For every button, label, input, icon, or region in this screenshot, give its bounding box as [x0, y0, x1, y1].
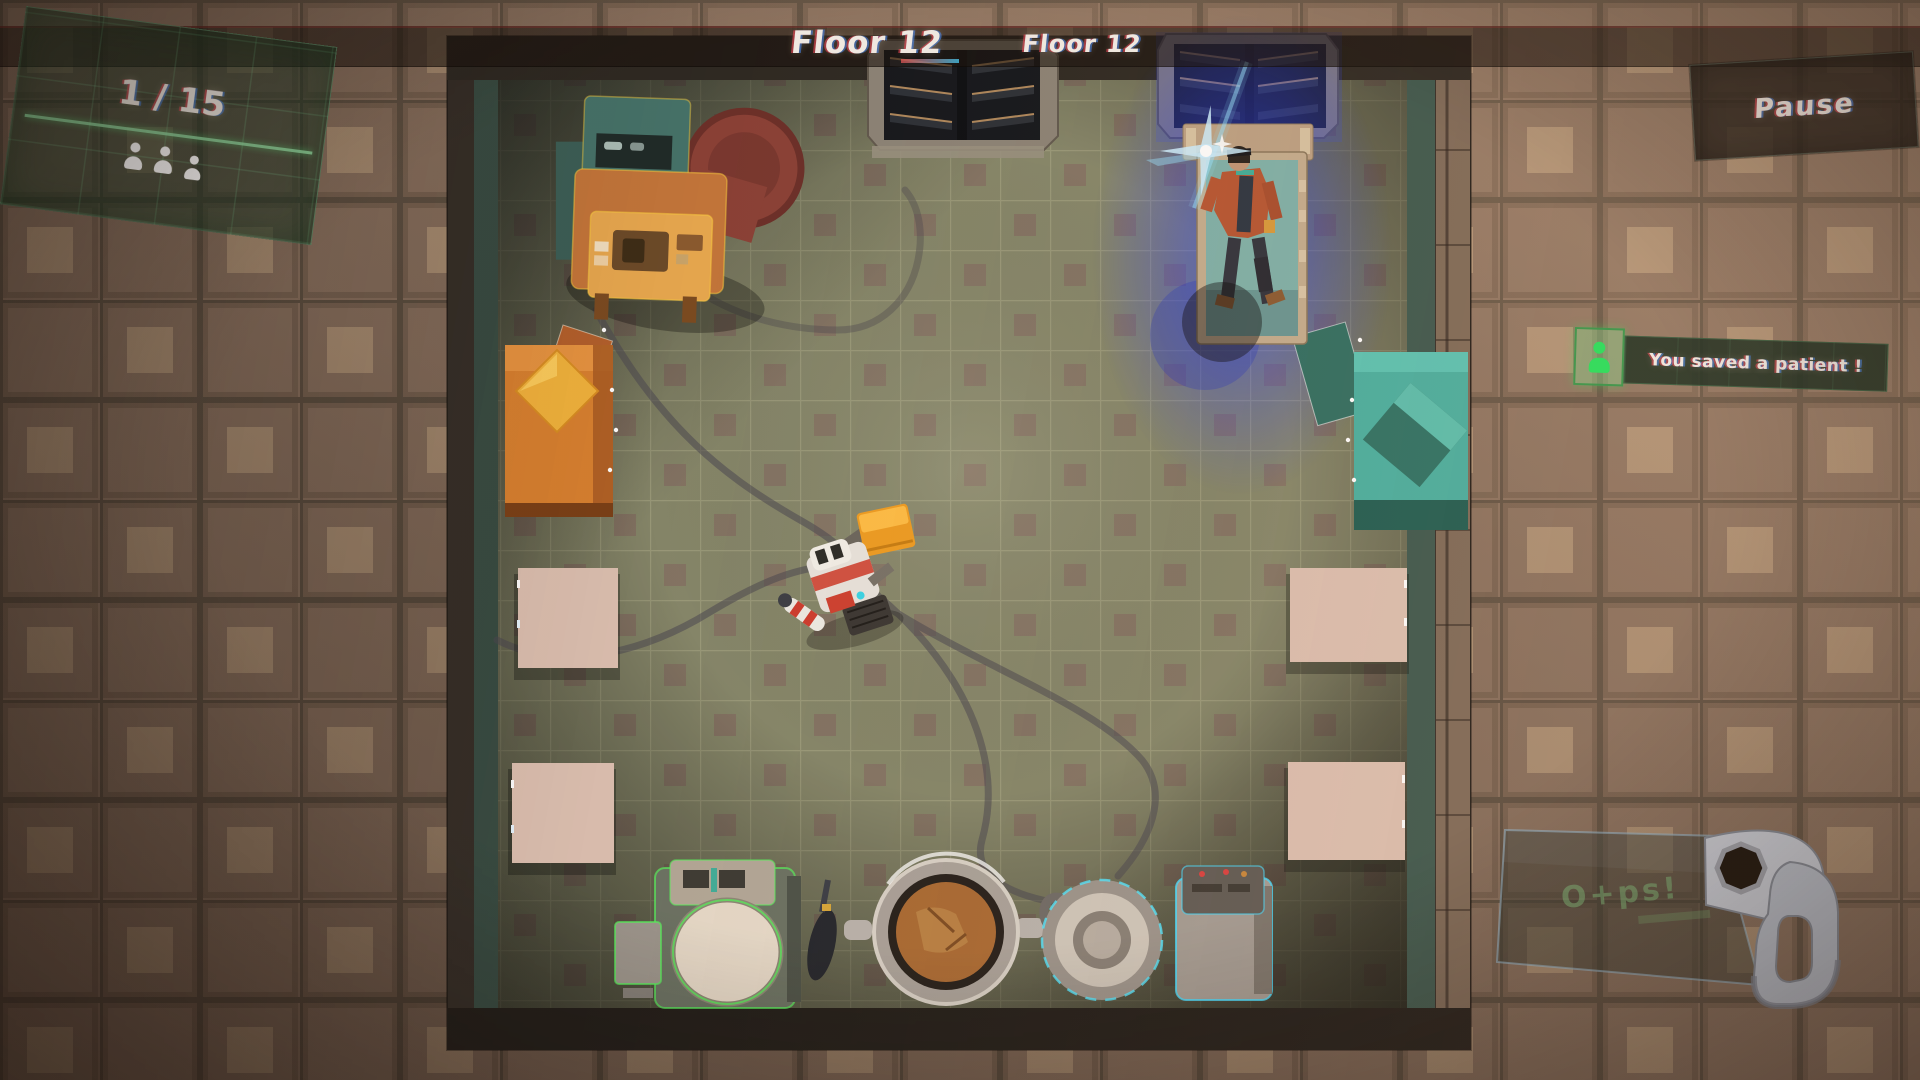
sterilizer-round-device[interactable] [1042, 880, 1162, 1000]
floor-label-underline [901, 59, 959, 63]
pause-button[interactable]: Pause [1689, 51, 1918, 160]
operating-table-right-2[interactable] [1284, 762, 1405, 872]
person-icon [152, 145, 175, 174]
room-wall-left [474, 62, 498, 1008]
floor-label-secondary: Floor 12 [1001, 30, 1164, 58]
notification-text: You saved a patient ! [1649, 350, 1863, 377]
person-icon [123, 141, 146, 170]
notification-bar: You saved a patient ! [1623, 336, 1888, 392]
operating-table-right-1[interactable] [1286, 568, 1409, 674]
supply-cabinet-orange[interactable] [505, 325, 618, 517]
saved-patient-icon [1587, 341, 1612, 373]
room-wall-right [1407, 80, 1435, 1008]
patient-saved-notification: You saved a patient ! [1573, 325, 1897, 397]
game-screen: O+ps! Floor 12 Floor 12 1 / 15 Pause You… [0, 0, 1920, 1080]
room-wall-bottom [447, 1008, 1471, 1050]
patient-counter-panel: 1 / 15 [0, 6, 337, 245]
floor-label: Floor 12 [765, 25, 969, 61]
patient-counter-value: 1 / 15 [15, 59, 330, 139]
person-icon [183, 155, 204, 181]
operating-table-left-1[interactable] [514, 568, 620, 680]
saved-patient-icon-box [1573, 327, 1625, 387]
monitor-cart-teal-outline[interactable] [1176, 866, 1272, 1000]
patient-counter-icons [7, 126, 320, 197]
operating-table-left-2[interactable] [508, 763, 616, 875]
pause-button-label: Pause [1753, 87, 1855, 124]
